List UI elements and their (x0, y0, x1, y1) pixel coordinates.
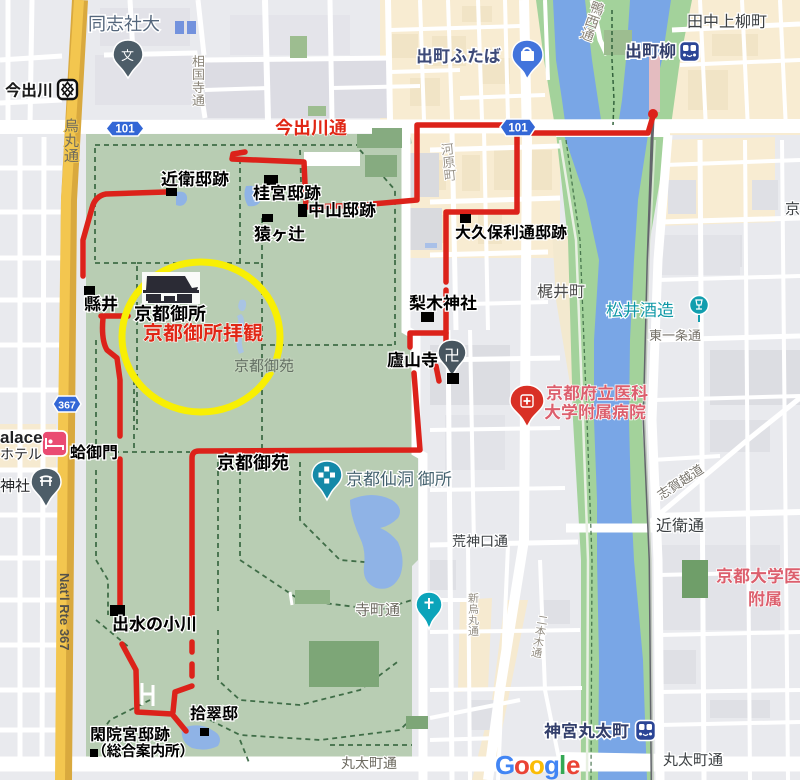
svg-text:367: 367 (58, 400, 76, 412)
svg-text:o: o (529, 750, 545, 780)
svg-text:alace: alace (0, 428, 43, 447)
svg-text:101: 101 (508, 123, 528, 135)
svg-text:G: G (495, 750, 515, 780)
svg-text:e: e (566, 750, 580, 780)
svg-text:g: g (544, 750, 560, 780)
svg-text:Nat'l Rte 367: Nat'l Rte 367 (57, 573, 72, 651)
svg-text:o: o (514, 750, 530, 780)
svg-text:101: 101 (115, 124, 135, 136)
